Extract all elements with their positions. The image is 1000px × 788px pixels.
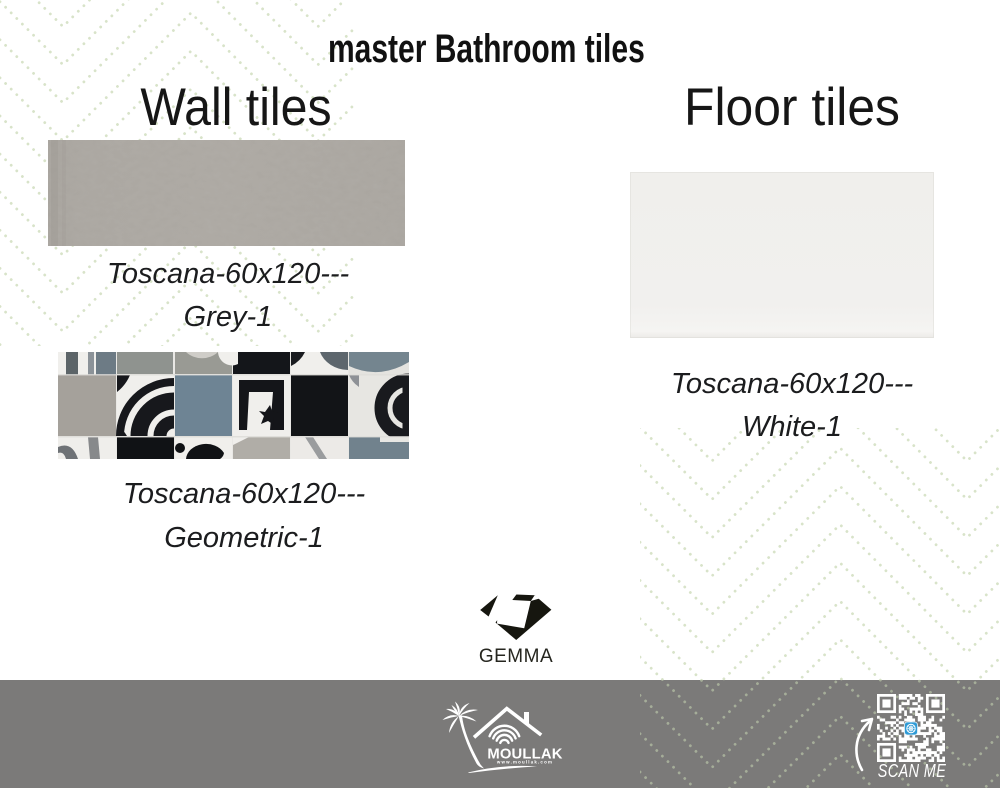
svg-text:www.moullak.com: www.moullak.com bbox=[496, 760, 553, 765]
